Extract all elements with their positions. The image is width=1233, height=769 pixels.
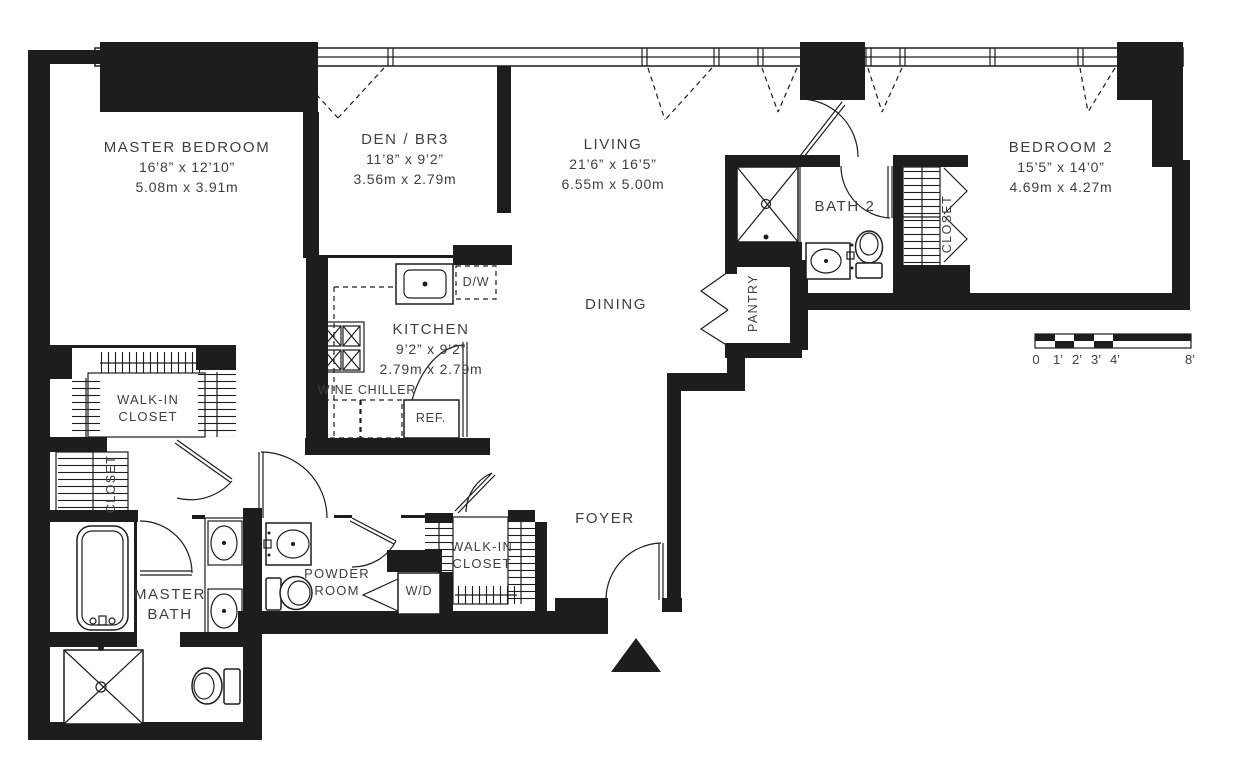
room-label-powder-room: POWDER ROOM (290, 565, 385, 599)
scale-label-8: 8’ (1185, 352, 1195, 367)
room-label-bedroom-2: BEDROOM 2 15’5” x 14’0” 4.69m x 4.27m (1009, 138, 1113, 197)
entry-door (606, 543, 663, 600)
scale-label-1: 1’ (1053, 352, 1063, 367)
room-dims-ft: 11’8” x 9’2” (354, 150, 457, 170)
room-name: LIVING (562, 135, 665, 155)
room-label-master-walk-in-closet: WALK-IN CLOSET (101, 391, 196, 425)
floor-plan: MASTER BEDROOM 16’8” x 12’10” 5.08m x 3.… (0, 0, 1233, 769)
window-swing-dashes (292, 68, 1115, 120)
room-name: BEDROOM 2 (1009, 138, 1113, 158)
room-name: MASTER BATH (123, 585, 218, 625)
room-dims-m: 4.69m x 4.27m (1009, 178, 1113, 198)
room-dims-ft: 21’6” x 16’5” (562, 155, 665, 175)
bedroom-2-closet-label: CLOSET (940, 195, 954, 253)
master-bedroom-door (259, 452, 327, 518)
bedroom-2-hall-door (800, 99, 858, 158)
master-bath-door (140, 521, 192, 575)
room-dims-ft: 16’8” x 12’10” (104, 158, 271, 178)
room-name: KITCHEN (380, 320, 483, 340)
pantry-label: PANTRY (746, 274, 760, 332)
powder-toilet (266, 578, 281, 610)
room-label-living: LIVING 21’6” x 16’5” 6.55m x 5.00m (562, 135, 665, 194)
room-dims-ft: 15’5” x 14’0” (1009, 158, 1113, 178)
room-name: WALK-IN CLOSET (437, 538, 527, 572)
wine-chiller-label: WINE CHILLER (318, 383, 417, 397)
pantry-bifold-door (701, 272, 728, 346)
scale-label-4: 4’ (1110, 352, 1120, 367)
room-label-den-br3: DEN / BR3 11’8” x 9’2” 3.56m x 2.79m (354, 130, 457, 189)
powder-sink (266, 523, 311, 565)
room-name: BATH 2 (814, 197, 875, 217)
room-name: POWDER ROOM (290, 565, 385, 599)
room-label-dining: DINING (585, 295, 647, 315)
dishwasher-label: D/W (463, 275, 490, 289)
refrigerator-label: REF. (416, 411, 446, 425)
room-label-master-bath: MASTER BATH (123, 585, 218, 625)
master-toilet (224, 669, 240, 704)
room-name: DINING (585, 295, 647, 315)
room-dims-m: 3.56m x 2.79m (354, 170, 457, 190)
floor-plan-drawing (0, 0, 1233, 769)
scale-label-3: 3’ (1091, 352, 1101, 367)
master-closet-label: CLOSET (104, 455, 118, 513)
walk-in-closet-door (175, 440, 232, 500)
room-dims-ft: 9’2” x 9’2” (380, 340, 483, 360)
room-name: FOYER (575, 509, 635, 529)
room-dims-m: 5.08m x 3.91m (104, 178, 271, 198)
room-name: WALK-IN CLOSET (101, 391, 196, 425)
room-name: DEN / BR3 (354, 130, 457, 150)
room-label-foyer: FOYER (575, 509, 635, 529)
entry-arrow (611, 638, 661, 672)
room-dims-m: 6.55m x 5.00m (562, 175, 665, 195)
room-name: MASTER BEDROOM (104, 138, 271, 158)
washer-dryer-label: W/D (406, 584, 433, 598)
scale-label-2: 2’ (1072, 352, 1082, 367)
room-label-kitchen: KITCHEN 9’2” x 9’2” 2.79m x 2.79m (380, 320, 483, 379)
bath-2-toilet (856, 231, 883, 263)
room-dims-m: 2.79m x 2.79m (380, 360, 483, 380)
room-label-bath-2: BATH 2 (814, 197, 875, 217)
room-label-foyer-walk-in-closet: WALK-IN CLOSET (437, 538, 527, 572)
foyer-closet-door (455, 473, 495, 513)
wine-chiller-outline (324, 400, 360, 438)
scale-bar (1035, 334, 1191, 348)
room-label-master-bedroom: MASTER BEDROOM 16’8” x 12’10” 5.08m x 3.… (104, 138, 271, 197)
bathtub (77, 526, 128, 630)
scale-label-0: 0 (1032, 352, 1039, 367)
